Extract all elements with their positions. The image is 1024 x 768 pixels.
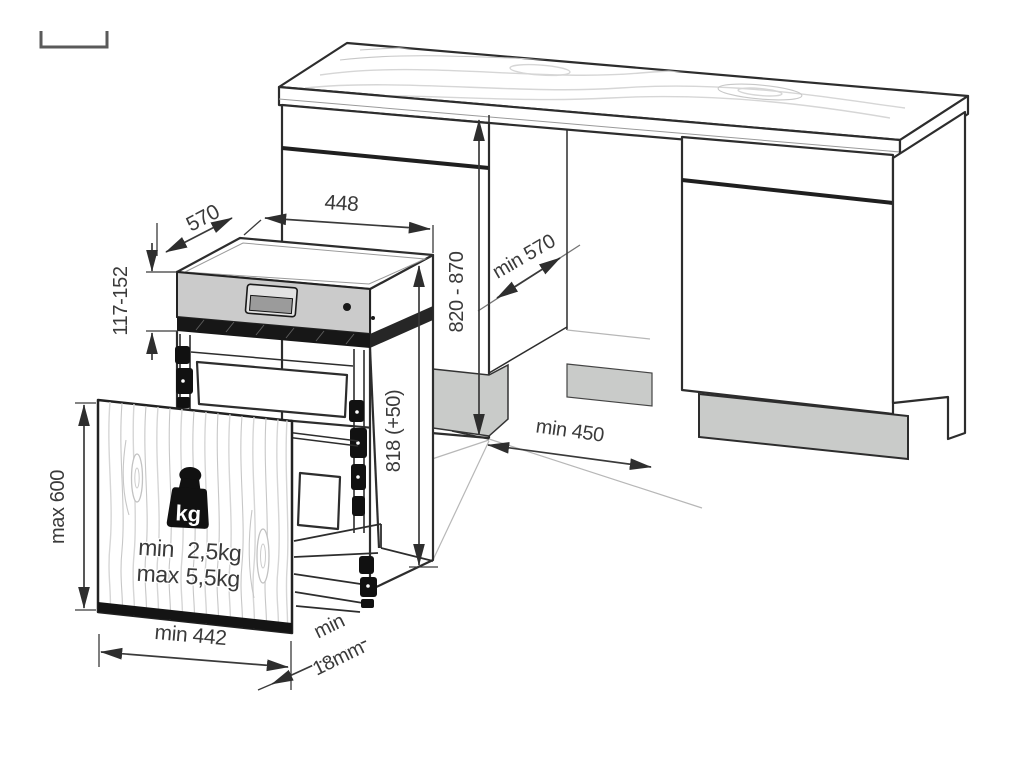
svg-text:117-152: 117-152 (110, 266, 132, 335)
niche-rear-plinth (567, 364, 652, 406)
dim-door-max-height: max 600 (47, 403, 96, 610)
weight-max-label: max (136, 560, 181, 589)
door-handle-icon (41, 31, 107, 47)
floor-lines (420, 431, 702, 562)
door-weight-spec: min 2,5kg max 5,5kg (136, 534, 242, 592)
weight-max-value: 5,5kg (185, 563, 241, 592)
svg-text:min 450: min 450 (534, 415, 605, 446)
installation-diagram: kg min 2,5kg max 5,5kg 570 448 (0, 0, 1024, 768)
svg-text:max 600: max 600 (47, 470, 69, 544)
lower-mounting-panel (298, 473, 340, 529)
svg-text:820 - 870: 820 - 870 (446, 251, 468, 332)
svg-text:448: 448 (324, 191, 359, 216)
left-cabinet-plinth (433, 365, 508, 436)
furniture-door-panel: kg min 2,5kg max 5,5kg (98, 400, 292, 633)
kg-label: kg (175, 500, 202, 526)
right-cabinet (682, 112, 965, 459)
dim-door-min-width: min 442 (99, 621, 291, 690)
installation-diagram-page: kg min 2,5kg max 5,5kg 570 448 (0, 0, 1024, 768)
dim-front-clearance: min 450 (488, 415, 651, 467)
svg-text:818 (+50): 818 (+50) (383, 390, 405, 473)
weight-min-label: min (138, 534, 175, 562)
dim-niche-depth: min 570 (478, 230, 580, 311)
power-button (343, 303, 351, 311)
svg-text:570: 570 (183, 200, 224, 236)
svg-text:min 570: min 570 (489, 230, 559, 283)
control-panel-display (245, 284, 297, 317)
dim-panel-height: 117-152 (110, 243, 178, 360)
svg-text:min: min (311, 610, 349, 643)
svg-text:18mm: 18mm (309, 637, 367, 680)
svg-text:min 442: min 442 (154, 621, 228, 650)
right-cabinet-end-panel (893, 112, 965, 439)
weight-min-value: 2,5kg (186, 537, 242, 566)
